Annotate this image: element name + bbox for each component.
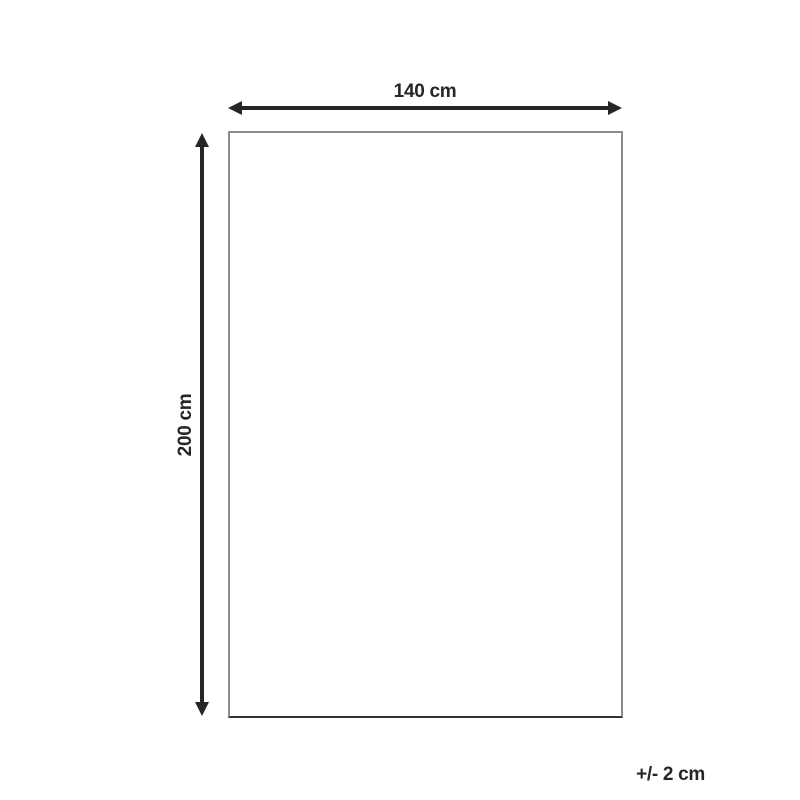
tolerance-label: +/- 2 cm — [636, 765, 705, 785]
horizontal-arrow-right-head — [608, 101, 622, 115]
vertical-dimension-arrow-icon — [195, 133, 209, 716]
horizontal-dimension-arrow-icon — [228, 101, 622, 115]
width-dimension-label: 140 cm — [228, 82, 622, 102]
vertical-arrow-top-head — [195, 133, 209, 147]
vertical-arrow-bottom-head — [195, 702, 209, 716]
horizontal-arrow-left-head — [228, 101, 242, 115]
height-dimension-label: 200 cm — [176, 394, 196, 457]
dimension-arrows — [0, 0, 800, 800]
dimension-diagram: 140 cm 200 cm +/- 2 cm — [0, 0, 800, 800]
